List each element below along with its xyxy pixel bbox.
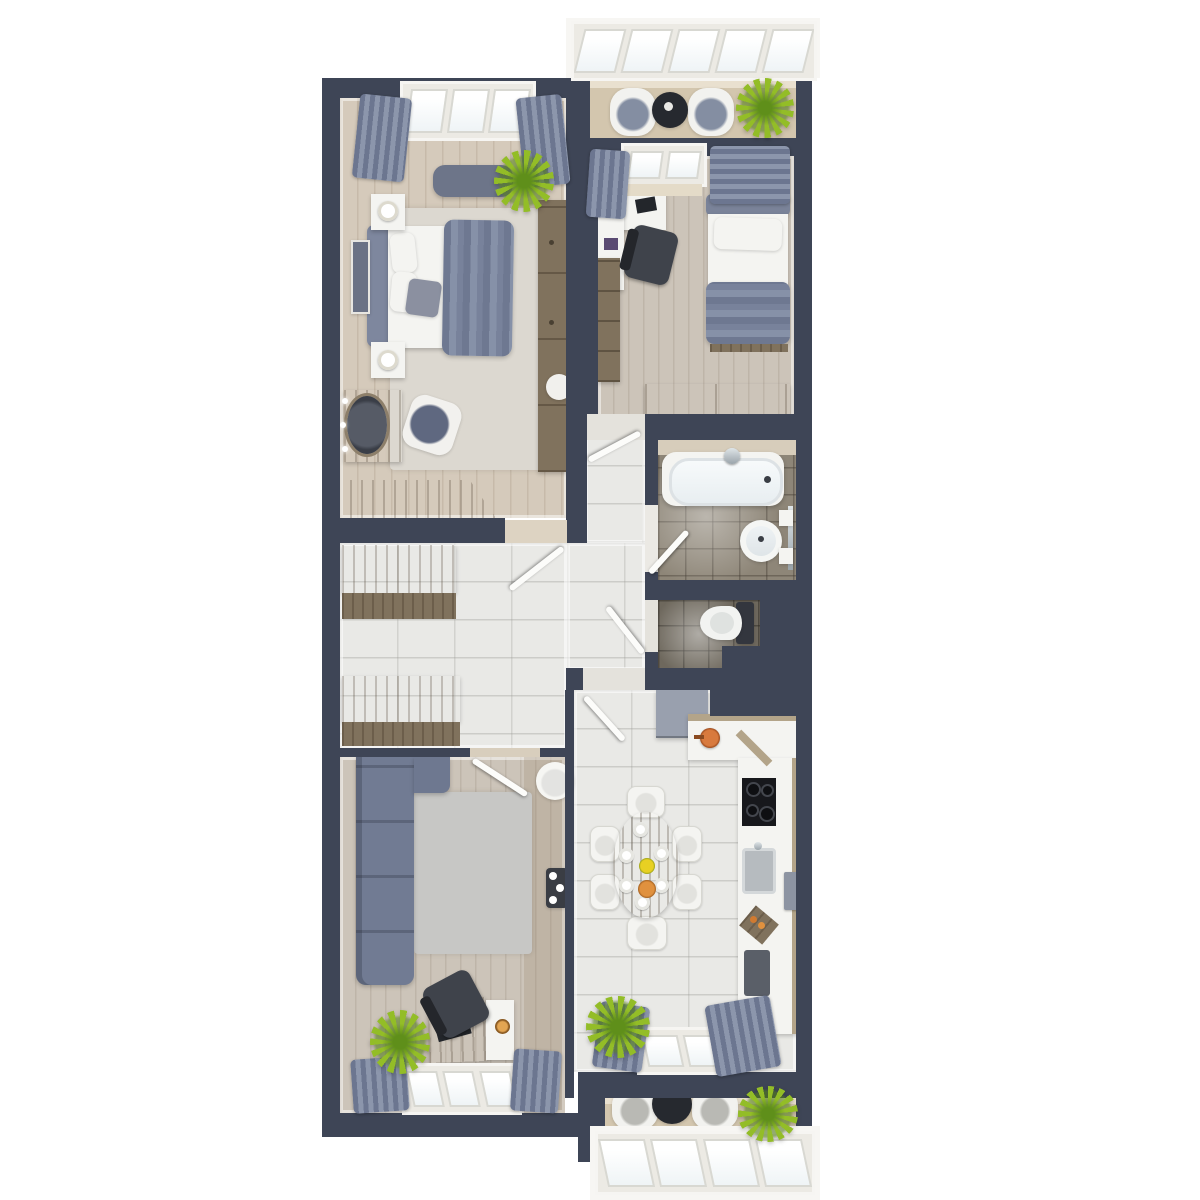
corner-sofa-long bbox=[356, 757, 414, 985]
flower bbox=[549, 872, 557, 880]
plate bbox=[654, 846, 669, 861]
bed-pillow bbox=[389, 232, 418, 274]
wall-bath-right bbox=[796, 432, 812, 598]
threshold-master-door bbox=[505, 520, 567, 543]
wall-bath-bottom bbox=[645, 580, 812, 600]
glass-pane bbox=[665, 151, 701, 179]
hall-cabinet-front bbox=[342, 593, 456, 619]
food-item bbox=[750, 916, 757, 923]
hall-bench-top bbox=[342, 676, 460, 722]
wall-left-outer bbox=[322, 78, 340, 1137]
plate bbox=[654, 878, 669, 893]
dining-chair bbox=[627, 916, 667, 950]
bathtub-faucet bbox=[724, 448, 740, 464]
master-bedroom-window bbox=[403, 84, 533, 138]
living-rug bbox=[414, 792, 532, 954]
counter-appliance bbox=[744, 950, 770, 996]
wall-master-bottom bbox=[322, 518, 505, 543]
bed-blanket bbox=[706, 282, 790, 344]
vanity-mirror bbox=[347, 396, 387, 454]
threshold-living-door bbox=[470, 748, 540, 757]
glass-pane bbox=[702, 1139, 759, 1187]
wall-master-right bbox=[566, 78, 587, 543]
wall-balcony-top-left bbox=[576, 76, 590, 140]
wall-bedroom2-bottom bbox=[645, 414, 812, 440]
desk-accessory bbox=[604, 238, 618, 250]
wall-living-bottom bbox=[322, 1113, 582, 1137]
table-decor bbox=[664, 102, 673, 111]
vanity-bulb bbox=[340, 422, 346, 428]
wall-bedroom2-right bbox=[794, 138, 812, 432]
plant bbox=[738, 1086, 798, 1142]
glass-pane bbox=[598, 1139, 655, 1187]
plate bbox=[619, 848, 634, 863]
bed-headboard bbox=[367, 225, 389, 347]
balcony-bottom-glazing bbox=[598, 1134, 812, 1192]
threshold-toilet-door bbox=[645, 600, 658, 652]
flower bbox=[549, 896, 557, 904]
bed-frame-foot bbox=[710, 344, 788, 352]
towel bbox=[779, 510, 793, 526]
curtain bbox=[704, 995, 782, 1077]
curtain bbox=[352, 94, 412, 183]
living-room-window bbox=[405, 1066, 519, 1112]
glass-pane bbox=[642, 1035, 684, 1067]
bed-pillow bbox=[713, 217, 782, 251]
glass-pane bbox=[762, 29, 814, 73]
fruit-bowl-orange bbox=[638, 880, 656, 898]
glass-pane bbox=[668, 29, 721, 73]
glass-pane bbox=[621, 29, 674, 73]
wardrobe-handle bbox=[549, 320, 554, 325]
bed-blanket bbox=[442, 219, 514, 356]
sink-faucet bbox=[754, 842, 762, 850]
floor-plan bbox=[0, 0, 1200, 1200]
accent-pillow bbox=[405, 278, 443, 318]
flower bbox=[556, 884, 564, 892]
table-lamp bbox=[378, 201, 398, 221]
bookshelf bbox=[598, 258, 620, 382]
burner bbox=[759, 806, 775, 822]
glass-pane bbox=[574, 29, 626, 73]
glass-pane bbox=[443, 1071, 482, 1107]
burner bbox=[746, 782, 761, 797]
plant bbox=[586, 996, 650, 1058]
balcony-armchair bbox=[688, 88, 734, 136]
glass-pane bbox=[447, 89, 490, 133]
plate bbox=[619, 878, 634, 893]
glass-pane bbox=[755, 1139, 812, 1187]
plate bbox=[633, 822, 648, 837]
wardrobe-handle bbox=[549, 240, 554, 245]
corner-sofa-seat bbox=[414, 757, 450, 793]
glass-pane bbox=[405, 89, 448, 133]
curtain bbox=[510, 1048, 562, 1113]
second-bedroom-window-sill bbox=[626, 184, 702, 196]
glass-pane bbox=[406, 1071, 445, 1107]
glass-pane bbox=[715, 29, 768, 73]
hall-bench-front bbox=[342, 722, 460, 746]
wall-art bbox=[351, 240, 370, 314]
wall-kitchen-top bbox=[645, 668, 812, 690]
curtain bbox=[586, 149, 631, 220]
desk-lamp bbox=[495, 1019, 510, 1034]
balcony-top-glazing bbox=[574, 24, 814, 78]
plant bbox=[370, 1010, 430, 1074]
wall-kitchen-door-hinge bbox=[566, 668, 583, 690]
basin-tap bbox=[758, 536, 764, 542]
hall-cabinet-top bbox=[342, 545, 456, 593]
wall-bath-left-upper bbox=[645, 440, 658, 505]
wall-hall-bottom-west bbox=[322, 748, 470, 757]
wall-hall-bottom-east bbox=[540, 748, 567, 757]
food-item bbox=[758, 922, 765, 929]
glass-pane bbox=[627, 151, 663, 179]
hallway-floor-east bbox=[567, 543, 645, 670]
toilet-seat bbox=[710, 612, 734, 634]
burner bbox=[746, 804, 759, 817]
second-bedroom-window bbox=[624, 146, 704, 184]
threshold-kitchen-door bbox=[583, 668, 645, 690]
glass-pane bbox=[650, 1139, 707, 1187]
burner bbox=[761, 784, 774, 797]
towel bbox=[779, 548, 793, 564]
vanity-bulb bbox=[342, 446, 348, 452]
fruit-bowl-yellow bbox=[639, 858, 655, 874]
pan-handle bbox=[694, 735, 704, 739]
wall-kitchen-right bbox=[796, 690, 812, 1098]
plant bbox=[494, 150, 554, 212]
table-lamp bbox=[378, 350, 398, 370]
plant bbox=[736, 78, 794, 138]
balcony-armchair bbox=[610, 88, 656, 136]
kitchen-sink bbox=[742, 848, 776, 894]
curtain bbox=[710, 146, 790, 204]
vanity-bulb bbox=[342, 398, 348, 404]
bathtub-drain bbox=[764, 476, 771, 483]
